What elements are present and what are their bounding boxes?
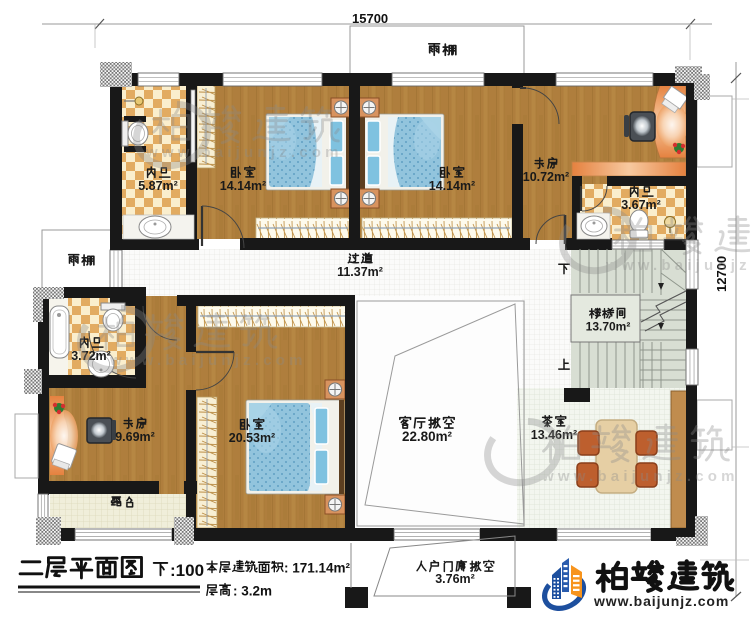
svg-text:20.53m²: 20.53m² (229, 431, 275, 445)
svg-text:: 171.14m²: : 171.14m² (284, 561, 351, 576)
svg-text::100: :100 (170, 561, 204, 580)
svg-text:9.69m²: 9.69m² (115, 430, 155, 444)
svg-text:22.80m²: 22.80m² (402, 429, 453, 444)
svg-text:www.baijunjz.com: www.baijunjz.com (145, 144, 343, 161)
svg-text:www.baijunjz.com: www.baijunjz.com (109, 352, 307, 369)
svg-text:3.76m²: 3.76m² (435, 572, 475, 586)
svg-text:5.87m²: 5.87m² (138, 179, 178, 193)
svg-text:www.baijunjz.com: www.baijunjz.com (541, 468, 739, 485)
svg-text:14.14m²: 14.14m² (429, 179, 475, 193)
svg-text:13.70m²: 13.70m² (586, 320, 631, 334)
svg-text:10.72m²: 10.72m² (523, 170, 569, 184)
svg-text:www.baijunjz.com: www.baijunjz.com (593, 593, 729, 609)
svg-text:11.37m²: 11.37m² (337, 265, 383, 279)
svg-text:14.14m²: 14.14m² (220, 179, 266, 193)
svg-text:www.baijunjz.com: www.baijunjz.com (605, 257, 750, 274)
svg-text:: 3.2m: : 3.2m (233, 584, 272, 599)
svg-text:3.67m²: 3.67m² (621, 198, 661, 212)
svg-text:15700: 15700 (352, 11, 388, 26)
